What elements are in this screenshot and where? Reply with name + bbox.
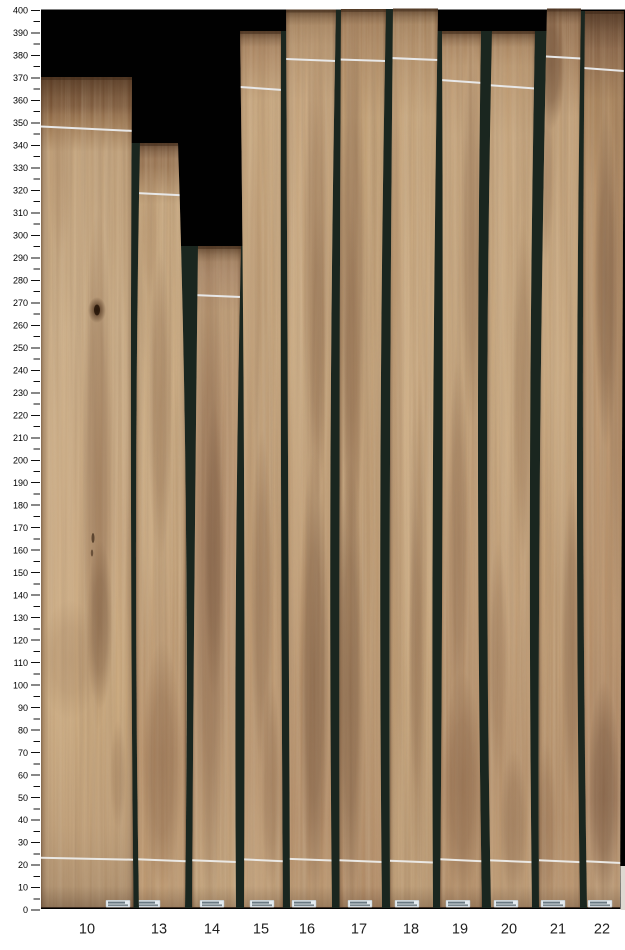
svg-text:10: 10 [18,883,28,893]
svg-text:240: 240 [13,366,28,376]
svg-text:14: 14 [204,922,220,938]
svg-text:360: 360 [13,96,28,106]
svg-text:10: 10 [79,922,95,938]
svg-text:150: 150 [13,568,28,578]
svg-text:170: 170 [13,523,28,533]
svg-text:300: 300 [13,231,28,241]
svg-text:0: 0 [23,905,28,915]
svg-text:160: 160 [13,545,28,555]
svg-text:90: 90 [18,703,28,713]
svg-text:20: 20 [18,860,28,870]
svg-text:50: 50 [18,793,28,803]
svg-text:140: 140 [13,590,28,600]
svg-text:380: 380 [13,51,28,61]
svg-text:120: 120 [13,635,28,645]
svg-text:18: 18 [403,922,419,938]
svg-text:340: 340 [13,141,28,151]
svg-text:210: 210 [13,433,28,443]
svg-text:20: 20 [501,922,517,938]
svg-text:60: 60 [18,770,28,780]
svg-text:350: 350 [13,118,28,128]
svg-text:15: 15 [253,922,269,938]
svg-text:320: 320 [13,186,28,196]
svg-text:17: 17 [351,922,367,938]
svg-text:270: 270 [13,298,28,308]
svg-text:190: 190 [13,478,28,488]
svg-text:19: 19 [452,922,468,938]
svg-text:22: 22 [594,922,610,938]
svg-text:30: 30 [18,838,28,848]
svg-text:40: 40 [18,815,28,825]
svg-text:16: 16 [299,922,315,938]
svg-text:310: 310 [13,208,28,218]
svg-text:290: 290 [13,253,28,263]
svg-text:330: 330 [13,163,28,173]
svg-text:21: 21 [550,922,566,938]
svg-text:200: 200 [13,456,28,466]
svg-text:110: 110 [14,658,28,668]
svg-text:390: 390 [13,28,28,38]
svg-text:13: 13 [151,922,167,938]
svg-text:220: 220 [13,411,28,421]
svg-text:100: 100 [13,680,28,690]
svg-text:130: 130 [13,613,28,623]
svg-text:250: 250 [13,343,28,353]
svg-text:180: 180 [13,500,28,510]
svg-text:230: 230 [13,388,28,398]
svg-text:280: 280 [13,276,28,286]
svg-text:370: 370 [13,73,28,83]
svg-text:70: 70 [18,748,28,758]
svg-text:260: 260 [13,321,28,331]
svg-text:400: 400 [13,6,28,16]
svg-text:80: 80 [18,725,28,735]
